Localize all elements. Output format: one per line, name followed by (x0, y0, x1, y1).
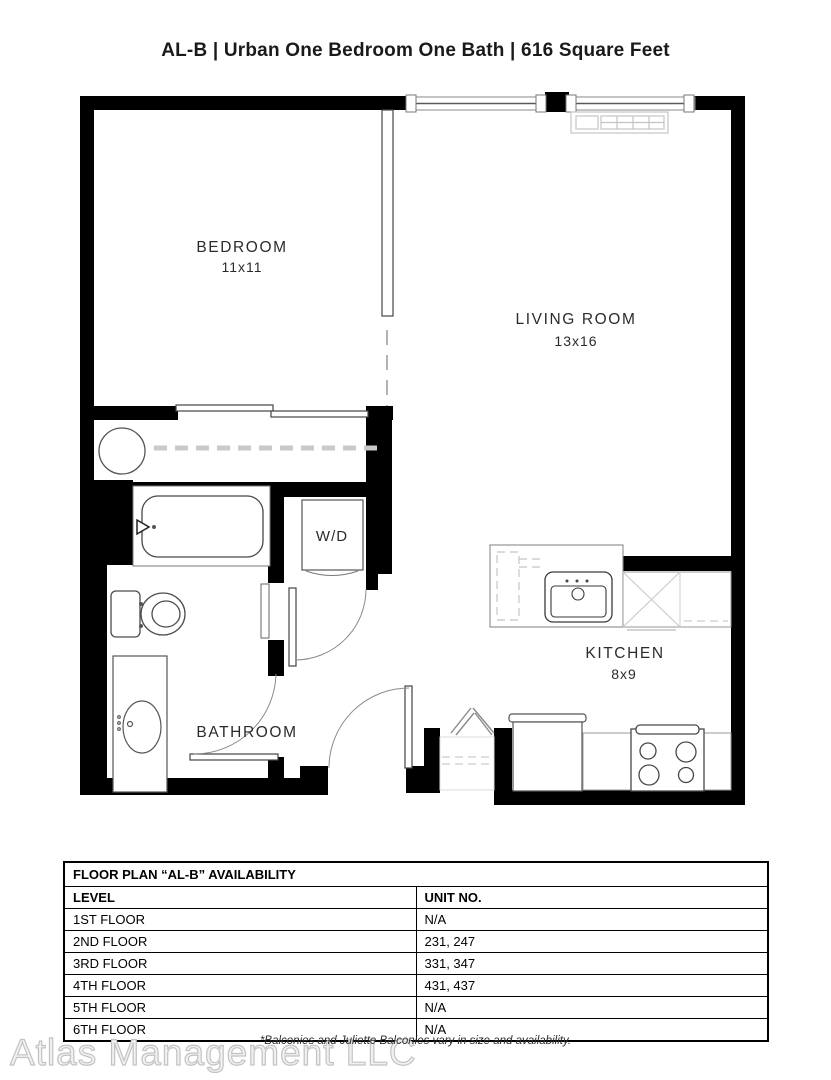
availability-table-header-row: LEVEL UNIT NO. (64, 887, 768, 909)
availability-table-title: FLOOR PLAN “AL-B” AVAILABILITY (64, 862, 768, 887)
level-cell: 1ST FLOOR (64, 909, 416, 931)
range-stove (631, 725, 704, 791)
dishwasher (623, 572, 731, 630)
table-row: 4TH FLOOR 431, 437 (64, 975, 768, 997)
bedroom-label: BEDROOM (196, 239, 287, 256)
kitchen-sink (545, 572, 612, 622)
floor-plan-page: AL-B | Urban One Bedroom One Bath | 616 … (0, 0, 831, 1080)
column-header-unit: UNIT NO. (416, 887, 768, 909)
kitchen-label: KITCHEN (585, 645, 664, 662)
level-cell: 5TH FLOOR (64, 997, 416, 1019)
wd-door-swing (289, 588, 366, 666)
bathroom-label: BATHROOM (196, 724, 297, 741)
unit-cell: 431, 437 (416, 975, 768, 997)
floor-plan-drawing: W/D (0, 0, 831, 850)
sliding-closet-doors (176, 405, 368, 417)
bedroom-partition-wall (382, 110, 393, 406)
level-cell: 2ND FLOOR (64, 931, 416, 953)
baseboard-heater (571, 112, 668, 133)
bathtub (133, 486, 270, 566)
level-cell: 4TH FLOOR (64, 975, 416, 997)
table-row: 3RD FLOOR 331, 347 (64, 953, 768, 975)
toilet (111, 591, 185, 637)
entry-coat-closet (440, 737, 494, 790)
closet-bifold-door (451, 708, 494, 735)
living-room-dims: 13x16 (554, 333, 597, 349)
washer-dryer-label: W/D (316, 528, 348, 545)
vanity-sink (113, 656, 167, 792)
unit-cell: 331, 347 (416, 953, 768, 975)
unit-cell: N/A (416, 909, 768, 931)
entry-door-swing (329, 686, 412, 768)
kitchen-dims: 8x9 (611, 666, 637, 682)
availability-table-title-row: FLOOR PLAN “AL-B” AVAILABILITY (64, 862, 768, 887)
bedroom-dims: 11x11 (221, 259, 262, 275)
bathroom-wall-door-leaf (261, 584, 269, 638)
unit-cell: 231, 247 (416, 931, 768, 953)
refrigerator (509, 714, 586, 791)
footnote: *Balconies and Juliette Balconies vary i… (0, 1035, 831, 1047)
level-cell: 3RD FLOOR (64, 953, 416, 975)
availability-table: FLOOR PLAN “AL-B” AVAILABILITY LEVEL UNI… (63, 861, 769, 1042)
water-heater (99, 428, 145, 474)
page-title: AL-B | Urban One Bedroom One Bath | 616 … (0, 40, 831, 62)
living-room-label: LIVING ROOM (516, 311, 637, 328)
table-row: 5TH FLOOR N/A (64, 997, 768, 1019)
unit-cell: N/A (416, 997, 768, 1019)
column-header-level: LEVEL (64, 887, 416, 909)
washer-dryer: W/D (302, 500, 363, 576)
bathroom-door-swing (190, 674, 278, 760)
table-row: 2ND FLOOR 231, 247 (64, 931, 768, 953)
table-row: 1ST FLOOR N/A (64, 909, 768, 931)
